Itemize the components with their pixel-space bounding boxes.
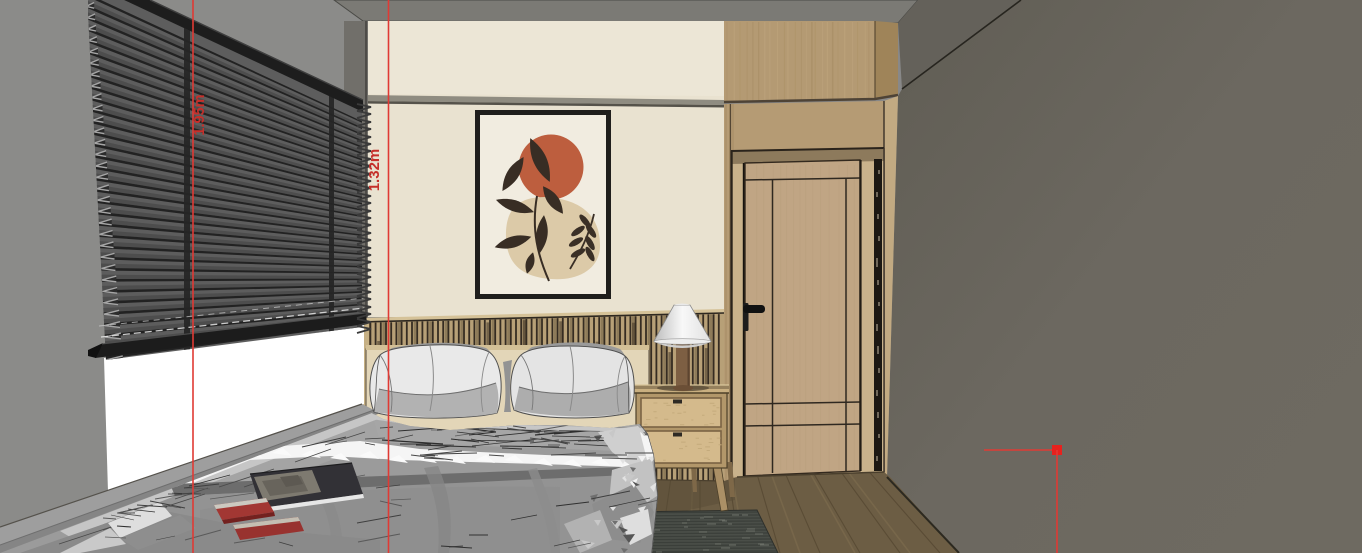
- svg-text:1.95m: 1.95m: [192, 94, 208, 135]
- svg-text:1.32m: 1.32m: [366, 149, 383, 192]
